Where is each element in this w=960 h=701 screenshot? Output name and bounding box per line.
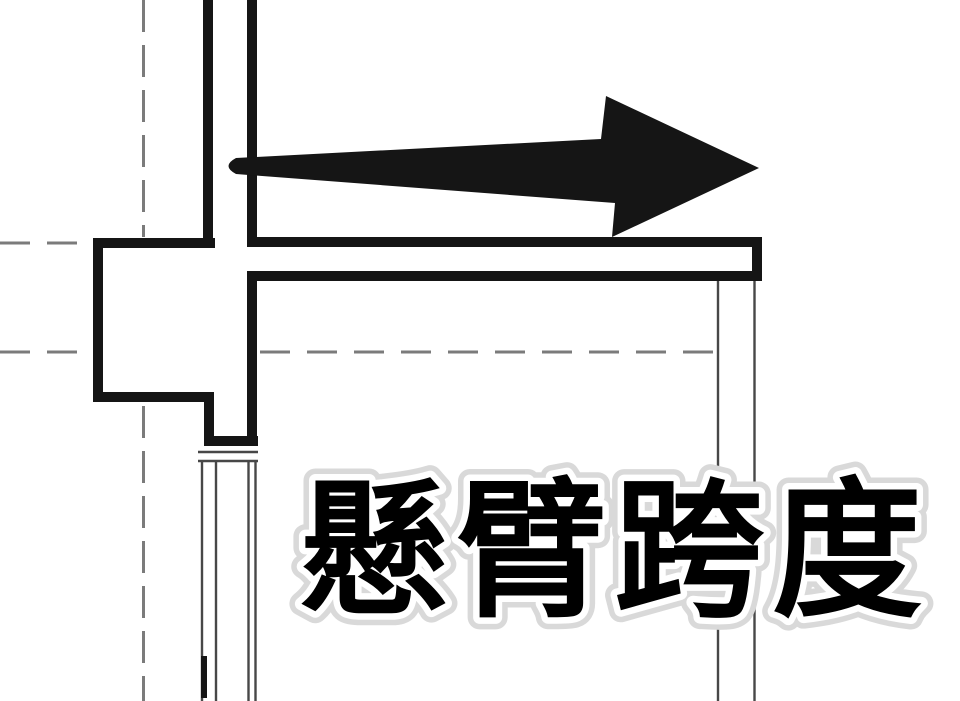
cantilever-span-arrow-icon <box>229 96 760 237</box>
annotation-label: 懸臂跨度 <box>298 465 930 639</box>
floor-plan-canvas: 懸臂跨度 懸臂跨度 懸臂跨度 <box>0 0 960 701</box>
cantilever-span-diagram: 懸臂跨度 懸臂跨度 懸臂跨度 <box>0 0 960 701</box>
